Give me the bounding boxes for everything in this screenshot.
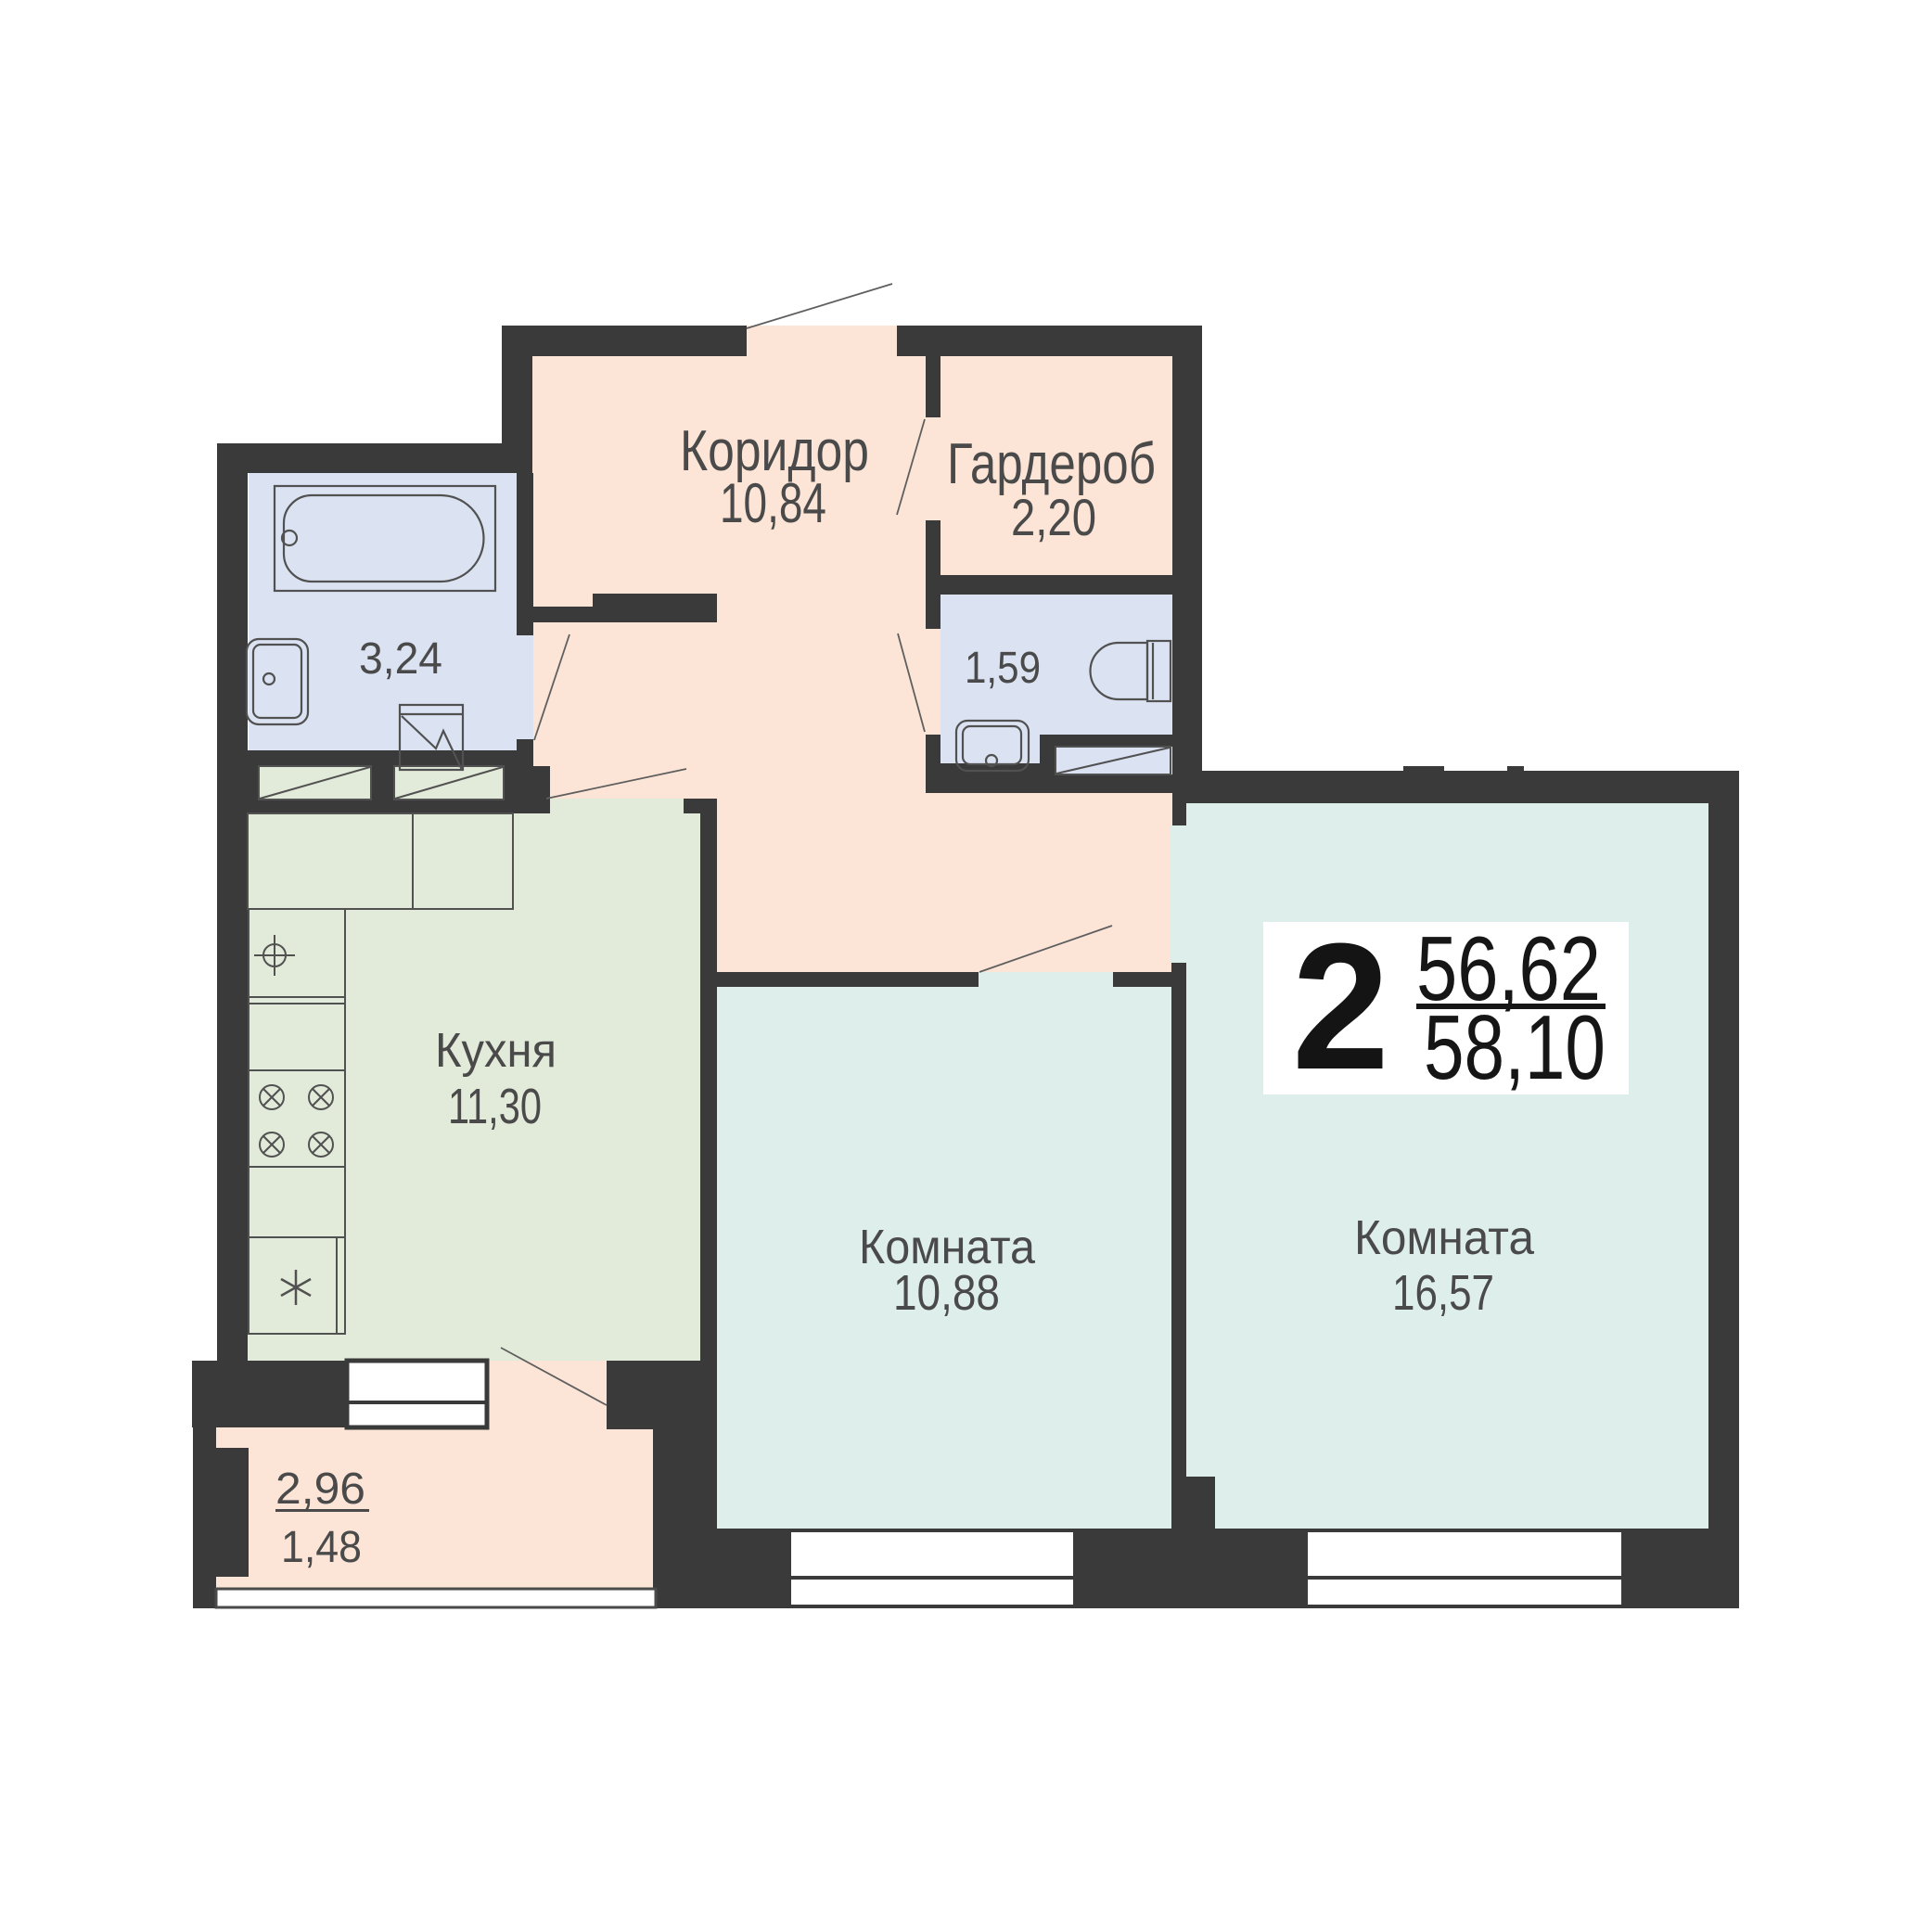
svg-text:58,10: 58,10 <box>1424 996 1606 1098</box>
svg-text:2,20: 2,20 <box>1011 488 1096 546</box>
svg-text:16,57: 16,57 <box>1392 1265 1494 1321</box>
svg-text:3,24: 3,24 <box>359 634 442 684</box>
svg-text:2: 2 <box>1292 906 1389 1107</box>
svg-text:10,84: 10,84 <box>720 472 826 534</box>
svg-text:Комната: Комната <box>1354 1211 1534 1265</box>
svg-text:2,96: 2,96 <box>275 1465 365 1514</box>
svg-text:10,88: 10,88 <box>893 1265 1000 1321</box>
svg-text:Гардероб: Гардероб <box>947 432 1156 496</box>
svg-text:Кухня: Кухня <box>435 1024 557 1078</box>
svg-text:1,48: 1,48 <box>281 1523 362 1572</box>
svg-text:11,30: 11,30 <box>448 1079 542 1134</box>
svg-text:1,59: 1,59 <box>965 644 1041 693</box>
